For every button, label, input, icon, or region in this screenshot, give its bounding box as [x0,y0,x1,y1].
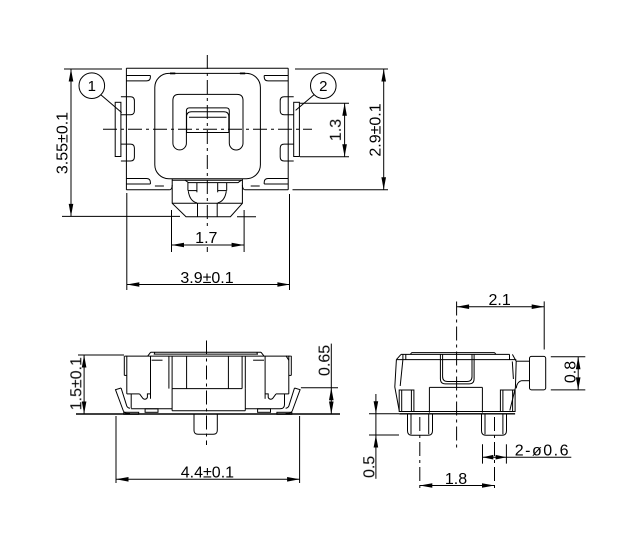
svg-text:2-ø0.6: 2-ø0.6 [515,443,570,460]
svg-text:0.65: 0.65 [317,345,334,376]
svg-text:1.8: 1.8 [445,471,467,488]
svg-text:0.5: 0.5 [361,456,378,478]
svg-text:2.1: 2.1 [488,292,510,309]
svg-text:2.9±0.1: 2.9±0.1 [368,103,385,156]
svg-text:3.55±0.1: 3.55±0.1 [55,112,72,174]
svg-text:1.7: 1.7 [195,230,217,247]
svg-text:2: 2 [319,78,327,95]
svg-text:1: 1 [88,78,96,95]
svg-text:3.9±0.1: 3.9±0.1 [180,270,233,287]
svg-text:0.8: 0.8 [563,361,580,383]
svg-text:1.3: 1.3 [328,119,345,141]
svg-text:4.4±0.1: 4.4±0.1 [181,465,234,482]
svg-text:1.5±0.1: 1.5±0.1 [69,357,86,410]
